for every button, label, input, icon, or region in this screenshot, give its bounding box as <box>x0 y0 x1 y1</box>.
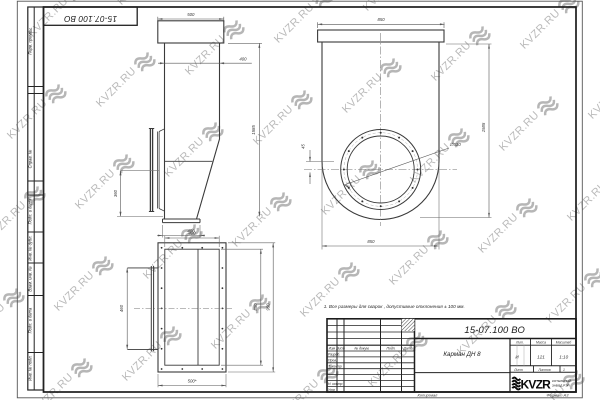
svg-text:∅530: ∅530 <box>449 142 461 147</box>
svg-text:KVZR: KVZR <box>521 378 552 392</box>
svg-text:1. Все размеры для сварок , д: 1. Все размеры для сварок , допустимые о… <box>324 304 465 309</box>
svg-text:500: 500 <box>187 12 195 17</box>
svg-text:Масса: Масса <box>536 341 546 345</box>
svg-text:Лист: Лист <box>513 368 523 372</box>
svg-text:КОТЕЛЬНЫЙ: КОТЕЛЬНЫЙ <box>552 379 571 383</box>
svg-text:Лист: Лист <box>335 347 345 351</box>
svg-text:1585: 1585 <box>481 122 486 132</box>
svg-text:Дата: Дата <box>403 347 413 351</box>
svg-text:Н. контр: Н. контр <box>328 382 342 386</box>
svg-text:Подп. и дата: Подп. и дата <box>28 198 33 224</box>
svg-text:№ докум.: № докум. <box>355 347 370 351</box>
svg-text:Лит.: Лит. <box>515 341 524 345</box>
svg-text:Масштаб: Масштаб <box>556 341 572 345</box>
svg-text:850: 850 <box>377 17 385 22</box>
svg-text:Разраб.: Разраб. <box>328 353 340 357</box>
svg-text:Формат А3: Формат А3 <box>547 392 570 397</box>
svg-text:400: 400 <box>188 231 196 236</box>
svg-text:1:10: 1:10 <box>559 355 568 360</box>
svg-text:Листов: Листов <box>537 368 551 372</box>
svg-text:1585: 1585 <box>251 125 256 135</box>
svg-text:Подп. и дата: Подп. и дата <box>28 307 33 333</box>
svg-text:ЗАВОД РЭП: ЗАВОД РЭП <box>552 384 570 388</box>
svg-text:Подп.: Подп. <box>386 347 395 351</box>
svg-text:Карман ДН 8: Карман ДН 8 <box>443 351 481 358</box>
svg-text:45: 45 <box>300 144 305 149</box>
svg-text:Инв. № дубл.: Инв. № дубл. <box>28 235 33 260</box>
svg-text:15-07.100 ВО: 15-07.100 ВО <box>464 324 525 335</box>
svg-text:500*: 500* <box>188 379 197 384</box>
svg-text:Утв: Утв <box>328 388 335 392</box>
svg-text:460: 460 <box>119 304 124 312</box>
svg-text:850: 850 <box>253 303 258 311</box>
svg-text:Пров.: Пров. <box>328 358 337 362</box>
svg-text:121: 121 <box>537 355 545 360</box>
svg-text:400: 400 <box>239 56 247 61</box>
svg-text:Справ. №: Справ. № <box>28 149 33 168</box>
svg-text:Инв. № подл.: Инв. № подл. <box>28 355 33 380</box>
svg-text:Т. контр: Т. контр <box>328 364 342 368</box>
svg-text:360: 360 <box>113 189 118 197</box>
svg-text:850: 850 <box>367 239 375 244</box>
svg-text:Копировал: Копировал <box>418 392 439 397</box>
svg-text:Взам. инв. №: Взам. инв. № <box>28 266 33 292</box>
svg-text:Изм: Изм <box>329 347 336 351</box>
svg-text:950: 950 <box>265 303 270 311</box>
svg-text:1: 1 <box>563 368 565 372</box>
svg-text:Перв. примен.: Перв. примен. <box>28 27 33 54</box>
svg-text:15-07.100 ВО: 15-07.100 ВО <box>63 14 117 23</box>
